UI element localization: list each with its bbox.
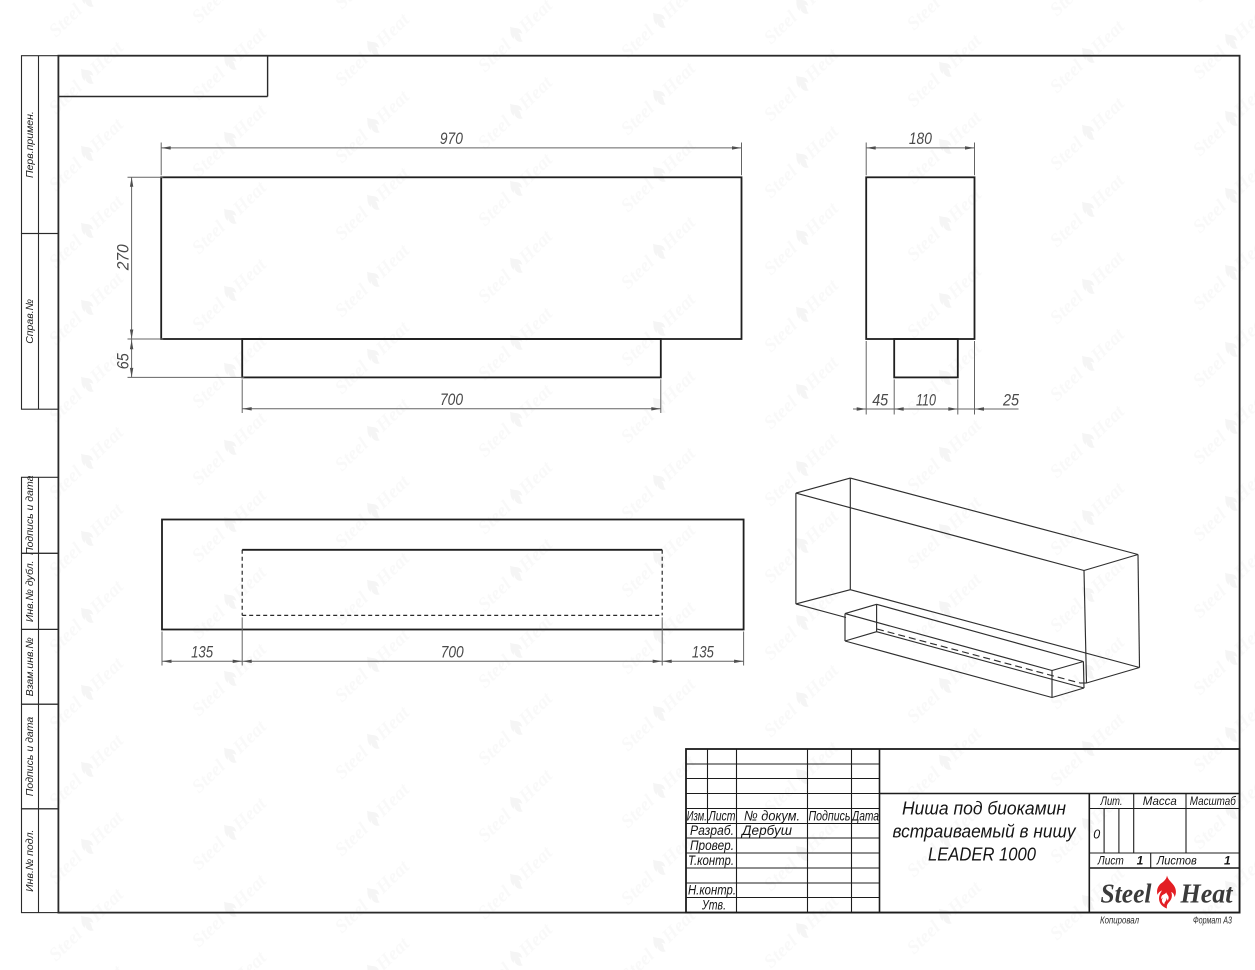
svg-text:25: 25 <box>1002 391 1020 409</box>
svg-text:Н.контр.: Н.контр. <box>688 882 736 897</box>
svg-text:Изм.: Изм. <box>687 807 707 823</box>
svg-text:Провер.: Провер. <box>690 838 734 853</box>
svg-text:Масштаб: Масштаб <box>1190 796 1236 808</box>
svg-text:970: 970 <box>440 130 464 148</box>
svg-text:Heat: Heat <box>1180 879 1234 909</box>
svg-text:Формат А3: Формат А3 <box>1193 916 1232 927</box>
svg-text:Справ.№: Справ.№ <box>24 299 36 344</box>
svg-text:110: 110 <box>916 391 937 409</box>
svg-text:Утв.: Утв. <box>701 897 726 912</box>
svg-text:270: 270 <box>115 244 133 272</box>
svg-text:Разраб.: Разраб. <box>690 823 734 838</box>
svg-text:1: 1 <box>1224 854 1231 868</box>
svg-text:Перв.примен.: Перв.примен. <box>24 111 36 178</box>
svg-text:180: 180 <box>909 130 933 148</box>
svg-text:№ докум.: № докум. <box>744 807 800 823</box>
svg-text:Листов: Листов <box>1156 856 1197 868</box>
svg-text:Подпись и дата: Подпись и дата <box>24 717 36 797</box>
svg-text:Подпись: Подпись <box>809 807 851 823</box>
svg-text:135: 135 <box>692 644 715 662</box>
svg-text:Ниша под биокамин: Ниша под биокамин <box>902 799 1066 819</box>
svg-text:Лит.: Лит. <box>1100 796 1123 808</box>
svg-text:65: 65 <box>115 353 133 370</box>
svg-text:Дербуш: Дербуш <box>740 823 792 838</box>
svg-text:LEADER 1000: LEADER 1000 <box>928 845 1036 865</box>
svg-text:Лист: Лист <box>1097 856 1124 868</box>
svg-text:Steel: Steel <box>1101 879 1152 909</box>
svg-text:Инв.№ дубл.: Инв.№ дубл. <box>24 560 36 622</box>
svg-text:Дата: Дата <box>851 807 880 823</box>
svg-text:700: 700 <box>441 644 465 662</box>
svg-text:Т.контр.: Т.контр. <box>688 853 734 868</box>
svg-text:Взам.инв.№: Взам.инв.№ <box>24 637 36 696</box>
svg-text:1: 1 <box>1137 854 1144 868</box>
svg-text:Инв.№ подл.: Инв.№ подл. <box>24 830 36 892</box>
svg-text:135: 135 <box>191 644 214 662</box>
svg-text:Копировал: Копировал <box>1100 916 1139 927</box>
svg-text:0: 0 <box>1093 828 1100 842</box>
svg-text:Масса: Масса <box>1143 796 1177 808</box>
svg-text:встраиваемый в нишу: встраиваемый в нишу <box>893 822 1077 842</box>
svg-text:Лист: Лист <box>708 807 736 823</box>
svg-text:Подпись и дата: Подпись и дата <box>24 475 36 555</box>
svg-text:700: 700 <box>440 391 464 409</box>
svg-text:45: 45 <box>872 391 889 409</box>
